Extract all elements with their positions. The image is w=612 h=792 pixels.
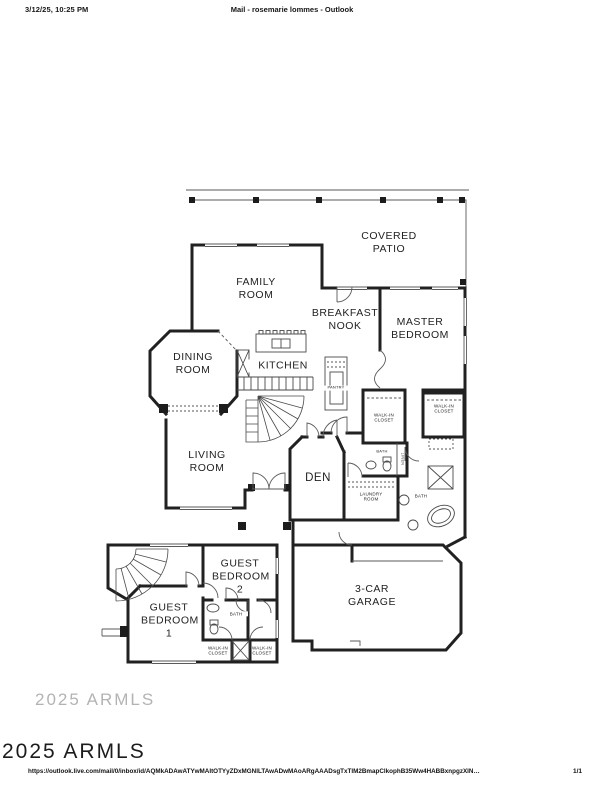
room-label-walk-in-closet-master: WALK-IN CLOSET bbox=[371, 413, 397, 424]
printed-page: 3/12/25, 10:25 PM Mail - rosemarie lomme… bbox=[0, 0, 612, 792]
room-label-bath-powder: BATH bbox=[370, 450, 394, 455]
closet-x-box bbox=[232, 641, 249, 660]
footer-url: https://outlook.live.com/mail/0/inbox/id… bbox=[28, 768, 563, 775]
bathtub-master bbox=[424, 501, 458, 531]
room-label-guest-bedroom-1: GUEST BEDROOM 1 bbox=[141, 601, 197, 640]
room-label-walk-in-closet-2: WALK-IN CLOSET bbox=[431, 404, 457, 415]
island-stools bbox=[259, 331, 305, 335]
watermark-armls-top: 2025 ARMLS bbox=[35, 690, 155, 710]
shower-master bbox=[428, 466, 453, 489]
room-label-walk-in-closet-g2: WALK-IN CLOSET bbox=[249, 646, 275, 657]
guest-bath-fixtures bbox=[207, 604, 219, 634]
kitchen-island bbox=[256, 331, 306, 353]
room-label-linen: LINEN bbox=[400, 453, 405, 466]
footer-page-number: 1/1 bbox=[573, 768, 582, 775]
room-label-laundry-room: LAUNDRY ROOM bbox=[356, 492, 386, 503]
room-label-master-bedroom: MASTER BEDROOM bbox=[381, 316, 459, 342]
room-label-bath-master: BATH bbox=[409, 493, 433, 498]
fireplace-bump bbox=[102, 626, 128, 637]
room-label-family-room: FAMILY ROOM bbox=[229, 276, 284, 302]
powder-bath-fixtures bbox=[366, 457, 391, 471]
room-label-pantry: PANTRY bbox=[321, 386, 351, 391]
room-label-bath-guest: BATH bbox=[224, 611, 248, 616]
room-label-guest-bedroom-2: GUEST BEDROOM 2 bbox=[212, 557, 268, 596]
room-label-breakfast-nook: BREAKFAST NOOK bbox=[303, 307, 388, 333]
pantry-cabinet bbox=[325, 357, 347, 410]
room-label-covered-patio: COVERED PATIO bbox=[349, 230, 429, 256]
watermark-armls-bottom: 2025 ARMLS bbox=[2, 740, 146, 764]
stairs-guest bbox=[116, 549, 168, 601]
room-label-walk-in-closet-g1: WALK-IN CLOSET bbox=[205, 646, 231, 657]
sinks-master bbox=[399, 495, 418, 530]
room-label-garage: 3-CAR GARAGE bbox=[342, 583, 402, 609]
room-label-den: DEN bbox=[298, 471, 338, 485]
floorplan-drawing bbox=[0, 0, 612, 792]
room-label-living-room: LIVING ROOM bbox=[181, 449, 233, 475]
room-label-kitchen: KITCHEN bbox=[248, 359, 318, 372]
room-label-dining-room: DINING ROOM bbox=[167, 351, 219, 377]
stairs-main bbox=[246, 396, 304, 442]
